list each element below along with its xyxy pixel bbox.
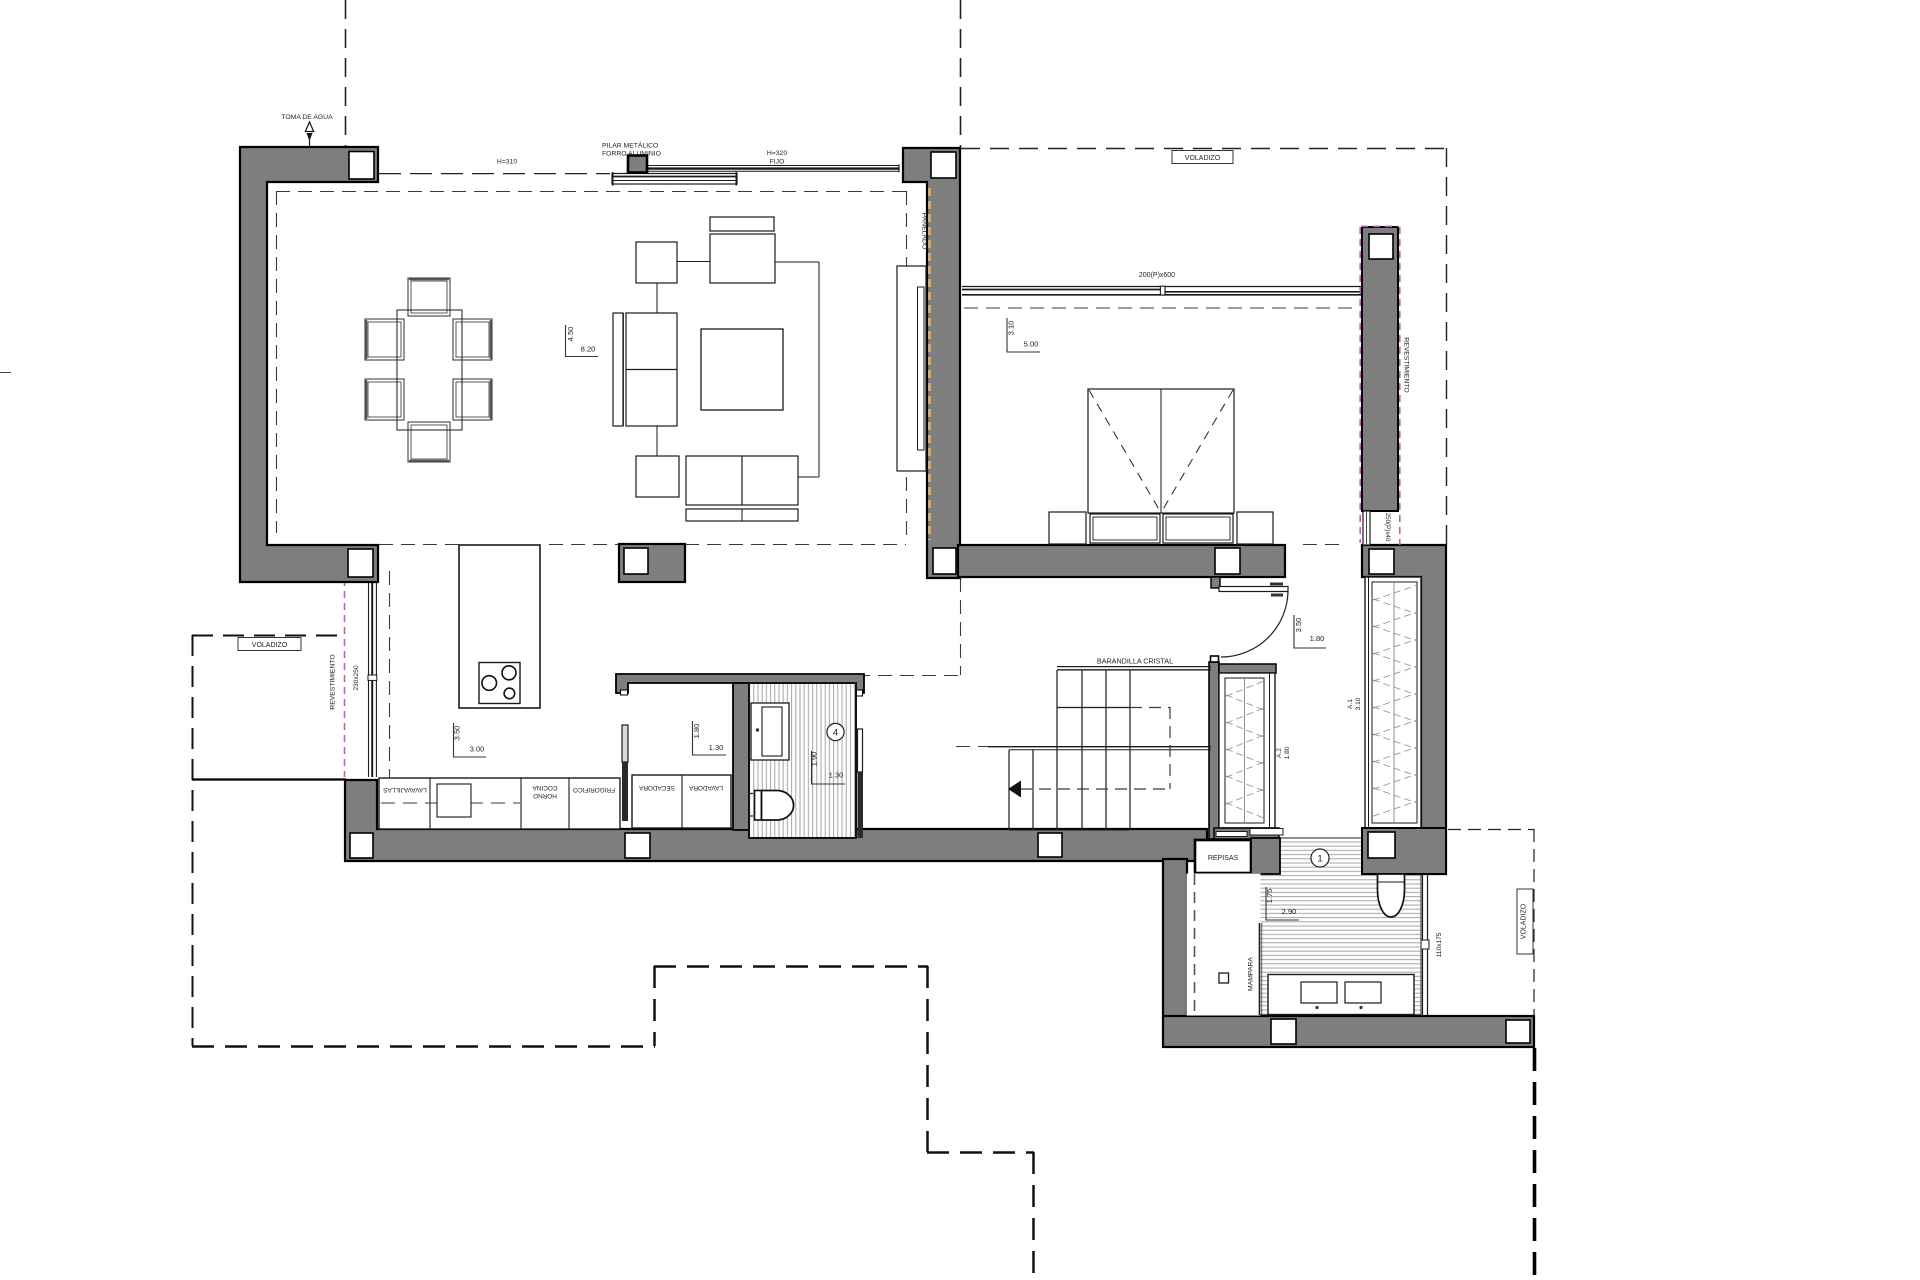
svg-text:200(P)x600: 200(P)x600 bbox=[1139, 272, 1175, 279]
svg-text:FRIGORIFICO: FRIGORIFICO bbox=[573, 786, 615, 793]
svg-text:3.00: 3.00 bbox=[470, 745, 485, 754]
svg-text:REVESTIMIENTO: REVESTIMIENTO bbox=[330, 654, 337, 709]
svg-text:LAVADORA: LAVADORA bbox=[688, 784, 723, 791]
svg-text:H=310: H=310 bbox=[497, 159, 517, 166]
svg-text:H=320: H=320 bbox=[767, 150, 787, 157]
svg-text:4.50: 4.50 bbox=[566, 327, 575, 342]
svg-text:FIJO: FIJO bbox=[770, 159, 785, 166]
svg-text:1.90: 1.90 bbox=[810, 752, 819, 767]
svg-text:1.80: 1.80 bbox=[692, 724, 701, 739]
svg-text:2.90: 2.90 bbox=[1282, 907, 1297, 916]
svg-text:1.30: 1.30 bbox=[829, 771, 844, 780]
svg-text:VOLADIZO: VOLADIZO bbox=[1185, 155, 1221, 162]
svg-text:1.30: 1.30 bbox=[709, 743, 724, 752]
svg-text:230x250: 230x250 bbox=[353, 665, 360, 691]
svg-text:BARANDILLA CRISTAL: BARANDILLA CRISTAL bbox=[1097, 657, 1173, 666]
svg-text:110x175: 110x175 bbox=[1436, 932, 1443, 957]
svg-text:A.2: A.2 bbox=[1276, 748, 1283, 758]
svg-text:3.50: 3.50 bbox=[1294, 618, 1303, 633]
svg-text:4: 4 bbox=[833, 727, 838, 738]
svg-text:1.80: 1.80 bbox=[1310, 634, 1325, 643]
svg-text:250(P)x40: 250(P)x40 bbox=[1384, 513, 1391, 542]
svg-text:3.10: 3.10 bbox=[1355, 697, 1362, 710]
svg-text:HORNO: HORNO bbox=[533, 792, 557, 799]
svg-text:MAMPARA: MAMPARA bbox=[1248, 957, 1255, 991]
svg-text:A.1: A.1 bbox=[1347, 699, 1354, 709]
svg-text:1.80: 1.80 bbox=[1284, 746, 1291, 759]
svg-text:TOMA DE AGUA: TOMA DE AGUA bbox=[281, 114, 333, 121]
svg-text:FORRO ALUMINIO: FORRO ALUMINIO bbox=[602, 151, 661, 158]
svg-text:5.00: 5.00 bbox=[1024, 340, 1039, 349]
svg-text:REVESTIMIENTO: REVESTIMIENTO bbox=[1403, 337, 1410, 392]
svg-text:REPISAS: REPISAS bbox=[1208, 855, 1239, 862]
svg-text:COCINA: COCINA bbox=[532, 784, 558, 791]
svg-text:VOLADIZO: VOLADIZO bbox=[252, 642, 288, 649]
svg-text:PILAR METÁLICO: PILAR METÁLICO bbox=[602, 141, 658, 150]
svg-text:SECADORA: SECADORA bbox=[638, 784, 675, 791]
svg-text:LAVAVAJILLAS: LAVAVAJILLAS bbox=[383, 786, 427, 793]
svg-text:8.20: 8.20 bbox=[581, 345, 596, 354]
svg-text:3.10: 3.10 bbox=[1007, 321, 1016, 336]
svg-text:VOLADIZO: VOLADIZO bbox=[1521, 903, 1528, 939]
svg-text:PANELADO: PANELADO bbox=[921, 213, 928, 250]
svg-text:1: 1 bbox=[1317, 853, 1322, 864]
